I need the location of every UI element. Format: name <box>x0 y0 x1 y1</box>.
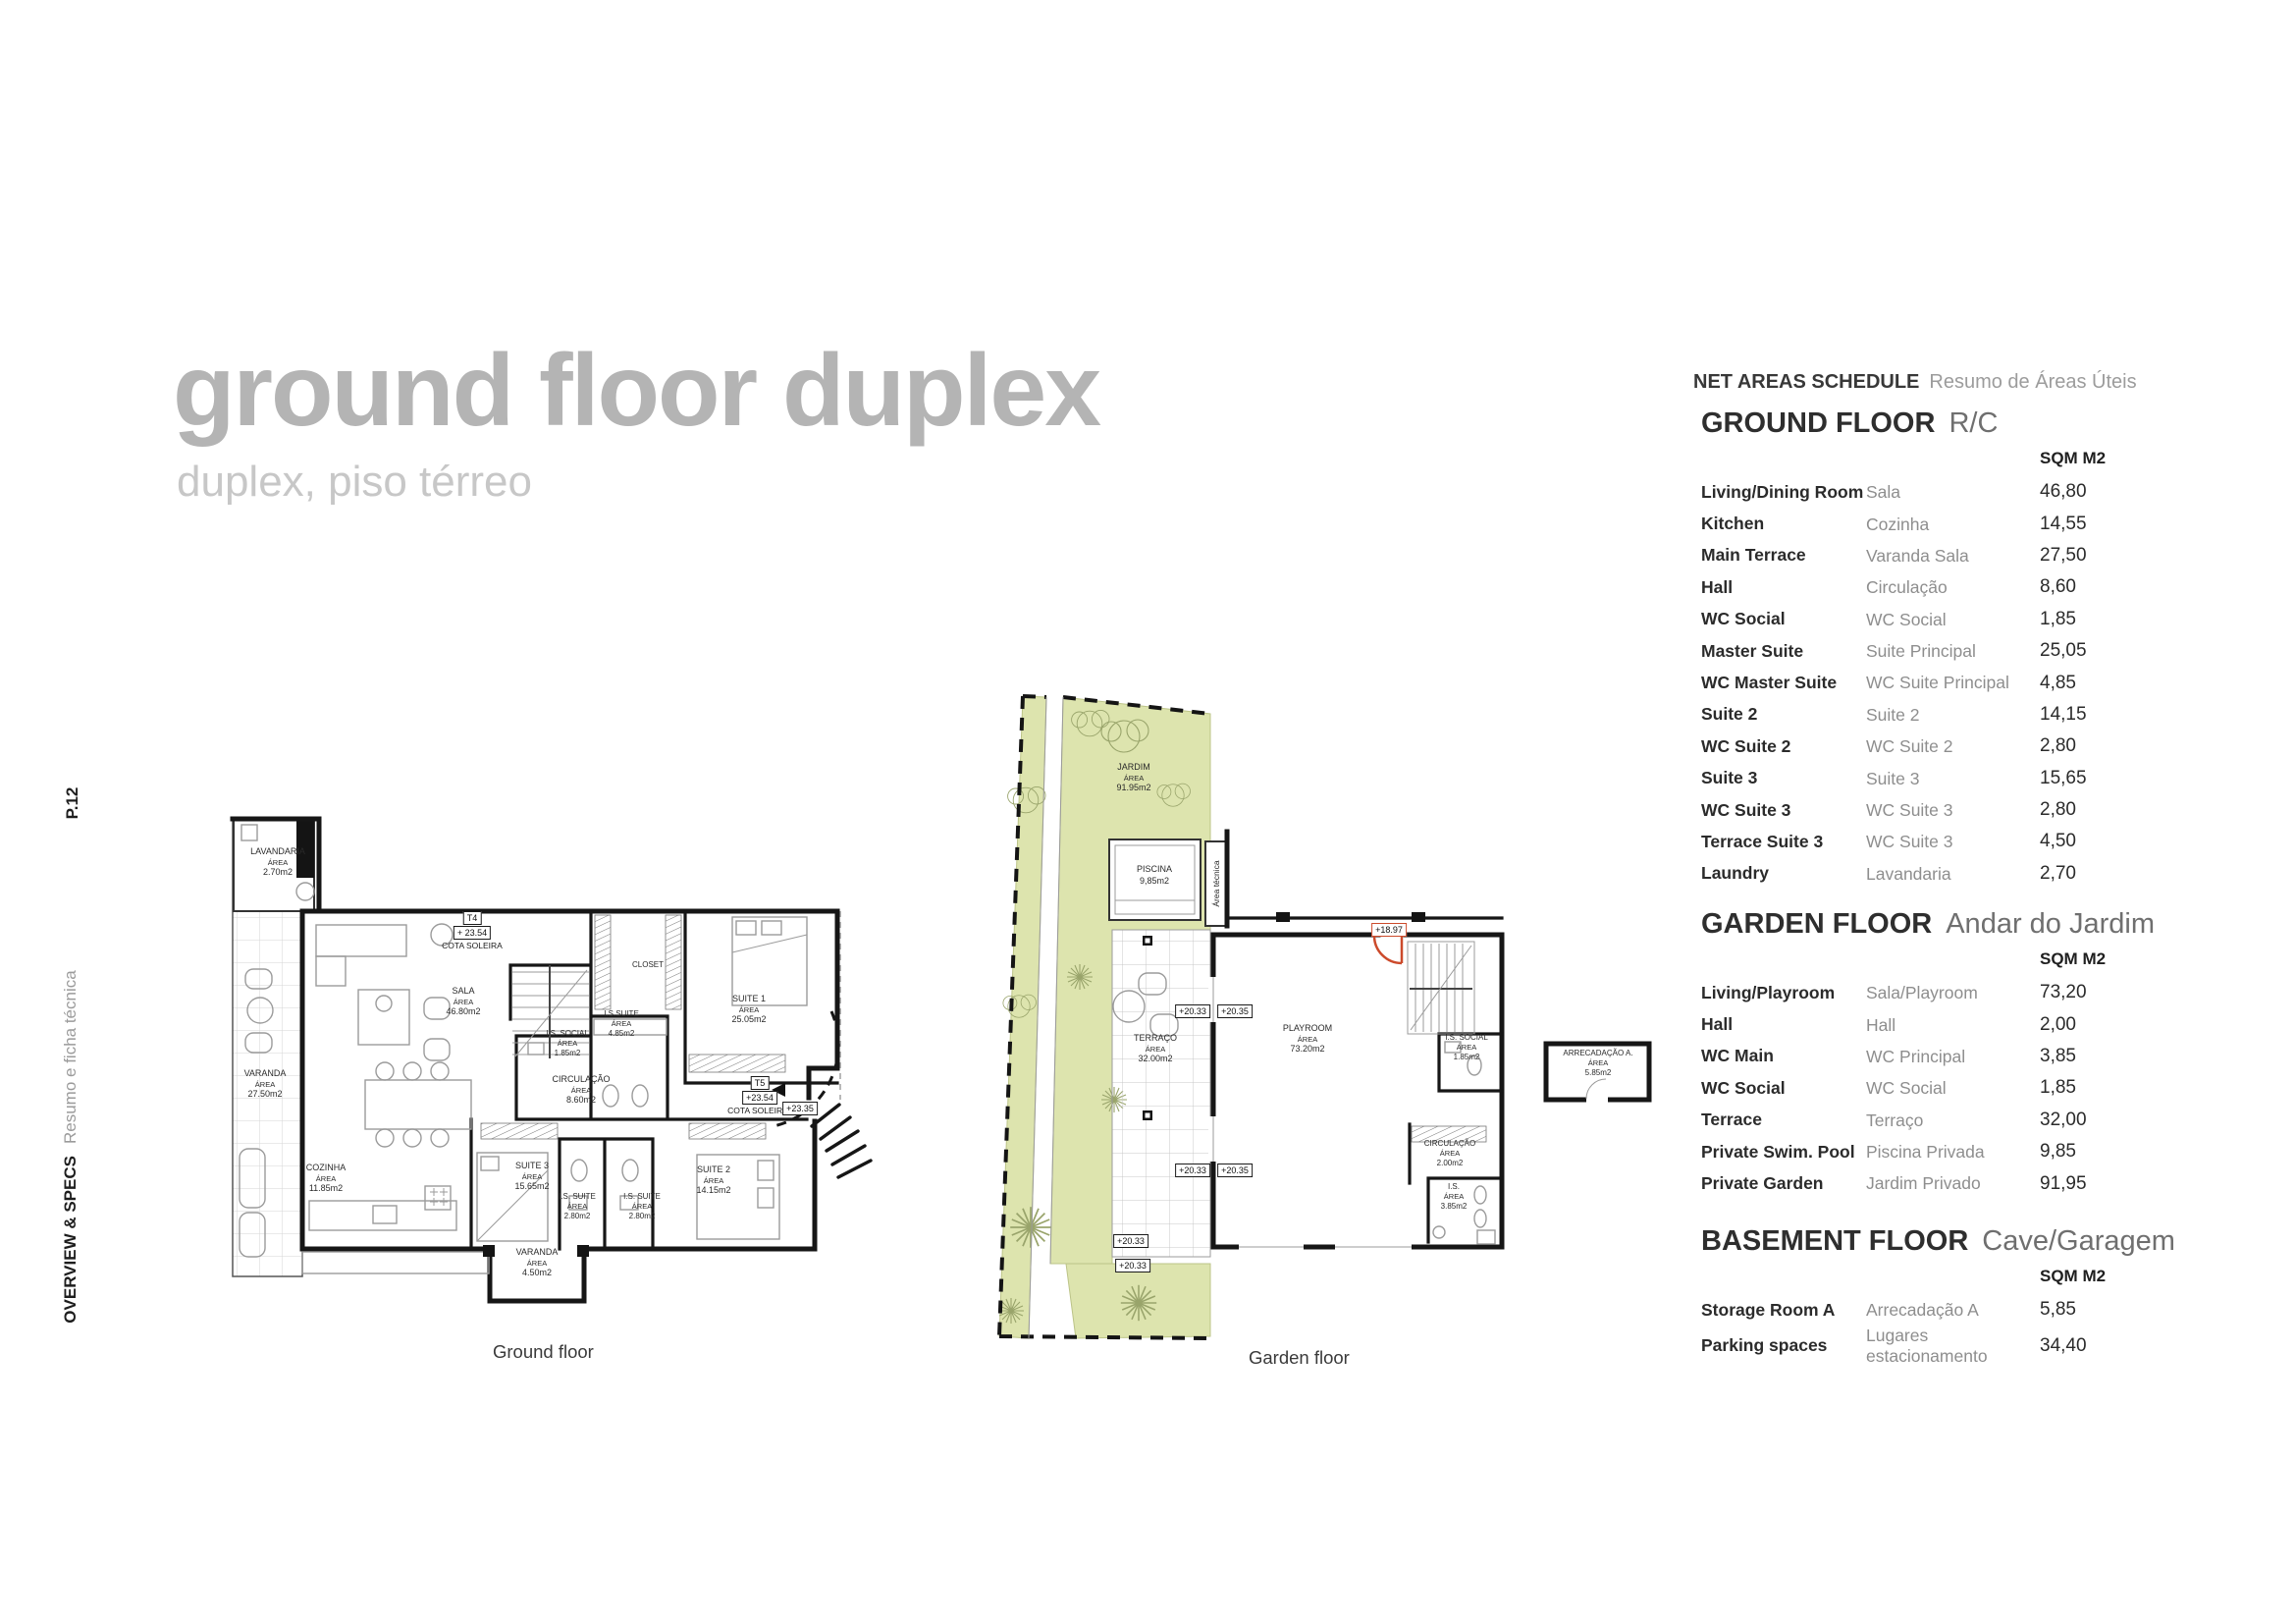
room-name-en: Laundry <box>1701 863 1866 884</box>
section-rows: Living/Playroom Sala/Playroom 73,20 Hall… <box>1693 977 2155 1200</box>
t5-badge: T5 <box>751 1076 770 1090</box>
room-area-sqm: 2,00 <box>2040 1014 2076 1036</box>
room-name-pt: Sala/Playroom <box>1866 983 2040 1002</box>
room-area-sqm: 1,85 <box>2040 1077 2076 1099</box>
room-label-is-suite-left: I.S. SUITEÁREA2.80m2 <box>559 1192 596 1222</box>
garden-stairs <box>1408 942 1474 1034</box>
room-label-closet: CLOSET <box>632 960 664 970</box>
room-name-en: Storage Room A <box>1701 1300 1866 1321</box>
room-name-pt: WC Suite Principal <box>1866 673 2040 692</box>
room-area-sqm: 4,50 <box>2040 831 2076 852</box>
room-label-garden-is: I.S.ÁREA3.85m2 <box>1441 1182 1468 1213</box>
room-name-en: Hall <box>1701 1014 1866 1035</box>
entry-annotation <box>772 911 871 1177</box>
window-openings <box>1208 977 1412 1252</box>
room-name-en: Suite 2 <box>1701 704 1866 725</box>
room-name-en: Master Suite <box>1701 641 1866 662</box>
level-badge-2033-c: +20.33 <box>1113 1234 1148 1248</box>
ground-floor-plan-drawing <box>147 805 879 1326</box>
t5-level-badge: +23.54 <box>742 1091 777 1105</box>
room-name-pt: Lavandaria <box>1866 864 2040 884</box>
room-name-pt: Varanda Sala <box>1866 546 2040 566</box>
table-row: Main Terrace Varanda Sala 27,50 <box>1693 540 2155 571</box>
room-name-pt: Piscina Privada <box>1866 1142 2040 1162</box>
unit-header: SQM M2 <box>1693 449 2155 470</box>
schedule-header: NET AREAS SCHEDULEResumo de Áreas Úteis <box>1693 371 2155 394</box>
table-row: Parking spaces Lugares estacionamento 34… <box>1693 1326 2155 1365</box>
table-row: Master Suite Suite Principal 25,05 <box>1693 635 2155 667</box>
room-label-suite-1: SUITE 1ÁREA25.05m2 <box>731 994 766 1026</box>
table-row: Living/Playroom Sala/Playroom 73,20 <box>1693 977 2155 1008</box>
room-name-pt: WC Suite 3 <box>1866 832 2040 851</box>
t5-cota-label: COTA SOLEIRA <box>727 1106 788 1115</box>
section-header: GROUND FLOORR/C <box>1693 407 2155 439</box>
room-area-sqm: 15,65 <box>2040 768 2087 789</box>
room-area-sqm: 32,00 <box>2040 1110 2087 1131</box>
room-name-en: Terrace Suite 3 <box>1701 832 1866 852</box>
table-row: Hall Hall 2,00 <box>1693 1008 2155 1040</box>
entry-level-badge: +23.35 <box>782 1102 818 1115</box>
kitchen-furniture <box>302 1186 489 1273</box>
room-area-sqm: 8,60 <box>2040 576 2076 598</box>
room-name-pt: Suite 2 <box>1866 705 2040 725</box>
room-name-en: WC Social <box>1701 609 1866 629</box>
room-name-en: WC Suite 2 <box>1701 736 1866 757</box>
room-name-pt: Cozinha <box>1866 514 2040 534</box>
ground-floor-caption: Ground floor <box>493 1341 594 1363</box>
table-row: Terrace Suite 3 WC Suite 3 4,50 <box>1693 826 2155 857</box>
room-area-sqm: 5,85 <box>2040 1299 2076 1321</box>
room-name-en: WC Main <box>1701 1046 1866 1066</box>
sidebar-section-label: OVERVIEW & SPECSResumo e ficha técnica <box>61 970 80 1323</box>
t4-level-badge: + 23.54 <box>454 926 491 940</box>
table-row: WC Suite 2 WC Suite 2 2,80 <box>1693 731 2155 762</box>
room-area-sqm: 14,15 <box>2040 704 2087 726</box>
table-row: Living/Dining Room Sala 46,80 <box>1693 476 2155 508</box>
sidebar-subtitle: Resumo e ficha técnica <box>61 970 80 1144</box>
room-area-sqm: 14,55 <box>2040 514 2087 535</box>
room-label-varanda: VARANDAÁREA27.50m2 <box>244 1068 287 1101</box>
room-label-is-social: I.S. SOCIALÁREA1.85m2 <box>546 1029 589 1059</box>
room-name-pt: Arrecadação A <box>1866 1300 2040 1320</box>
room-name-en: Main Terrace <box>1701 545 1866 566</box>
room-label-is-suite-right: I.S. SUITEÁREA2.80m2 <box>623 1192 661 1222</box>
room-label-terraco: TERRAÇOÁREA32.00m2 <box>1134 1033 1177 1065</box>
room-area-sqm: 2,80 <box>2040 799 2076 821</box>
room-label-playroom: PLAYROOMÁREA73.20m2 <box>1283 1023 1332 1056</box>
table-row: Kitchen Cozinha 14,55 <box>1693 508 2155 539</box>
room-name-pt: Jardim Privado <box>1866 1173 2040 1193</box>
room-name-en: Kitchen <box>1701 514 1866 534</box>
table-row: WC Suite 3 WC Suite 3 2,80 <box>1693 794 2155 826</box>
room-name-en: Private Garden <box>1701 1173 1866 1194</box>
level-badge-2035-a: +20.35 <box>1217 1004 1253 1018</box>
room-label-garden-is-social: I.S. SOCIALÁREA1.85m2 <box>1445 1033 1488 1063</box>
sidebar-title: OVERVIEW & SPECS <box>61 1156 80 1324</box>
t4-badge: T4 <box>463 911 482 925</box>
page-title: ground floor duplex <box>173 340 1099 442</box>
level-badge-2033-a: +20.33 <box>1175 1004 1210 1018</box>
room-label-is-suite-master: I.S.SUITEÁREA4.85m2 <box>604 1009 639 1040</box>
section-rows: Living/Dining Room Sala 46,80 Kitchen Co… <box>1693 476 2155 890</box>
page-subtitle: duplex, piso térreo <box>177 458 532 507</box>
room-area-sqm: 91,95 <box>2040 1173 2087 1195</box>
technical-area-label: Área técnica <box>1211 860 1221 906</box>
t4-cota-label: COTA SOLEIRA <box>442 941 503 950</box>
schedule-section-basement-floor: BASEMENT FLOORCave/Garagem SQM M2 Storag… <box>1693 1225 2155 1366</box>
schedule-section-garden-floor: GARDEN FLOORAndar do Jardim SQM M2 Livin… <box>1693 908 2155 1200</box>
table-row: WC Social WC Social 1,85 <box>1693 604 2155 635</box>
level-badge-2033-b: +20.33 <box>1175 1164 1210 1177</box>
room-label-sala: SALAÁREA46.80m2 <box>446 986 480 1018</box>
table-row: Terrace Terraço 32,00 <box>1693 1105 2155 1136</box>
room-label-jardim: JARDIMÁREA91.95m2 <box>1116 762 1150 794</box>
room-area-sqm: 9,85 <box>2040 1141 2076 1163</box>
room-label-piscina: PISCINA9,85m2 <box>1137 864 1172 887</box>
room-area-sqm: 46,80 <box>2040 481 2087 503</box>
room-name-en: Terrace <box>1701 1110 1866 1130</box>
room-name-pt: Circulação <box>1866 577 2040 597</box>
room-name-pt: Lugares estacionamento <box>1866 1326 2040 1365</box>
room-area-sqm: 27,50 <box>2040 545 2087 567</box>
room-area-sqm: 2,80 <box>2040 735 2076 757</box>
table-row: Suite 2 Suite 2 14,15 <box>1693 699 2155 731</box>
schedule-section-ground-floor: GROUND FLOORR/C SQM M2 Living/Dining Roo… <box>1693 407 2155 890</box>
room-label-circulacao: CIRCULAÇÃOÁREA8.60m2 <box>552 1074 610 1107</box>
room-name-en: Private Swim. Pool <box>1701 1142 1866 1163</box>
room-name-pt: WC Suite 3 <box>1866 800 2040 820</box>
section-header: GARDEN FLOORAndar do Jardim <box>1693 908 2155 940</box>
page: ground floor duplex duplex, piso térreo … <box>0 0 2296 1624</box>
room-name-pt: WC Suite 2 <box>1866 736 2040 756</box>
terrace-area <box>1112 930 1210 1257</box>
room-name-pt: Suite Principal <box>1866 641 2040 661</box>
table-row: WC Master Suite WC Suite Principal 4,85 <box>1693 667 2155 698</box>
level-badge-2033-d: +20.33 <box>1115 1259 1150 1272</box>
room-name-en: Parking spaces <box>1701 1335 1866 1356</box>
level-badge-1897: +18.97 <box>1371 923 1407 937</box>
room-area-sqm: 2,70 <box>2040 863 2076 885</box>
room-label-garden-circulacao: CIRCULAÇÃOÁREA2.00m2 <box>1424 1139 1475 1169</box>
room-area-sqm: 25,05 <box>2040 640 2087 662</box>
table-row: Private Garden Jardim Privado 91,95 <box>1693 1167 2155 1199</box>
room-label-suite-3: SUITE 3ÁREA15.65m2 <box>514 1161 549 1193</box>
room-label-arrecadacao: ARRECADAÇÃO A.ÁREA5.85m2 <box>1563 1049 1632 1079</box>
table-row: Hall Circulação 8,60 <box>1693 571 2155 603</box>
room-name-en: WC Suite 3 <box>1701 800 1866 821</box>
room-label-varanda-suite: VARANDAÁREA4.50m2 <box>516 1247 559 1279</box>
room-name-en: Suite 3 <box>1701 768 1866 788</box>
living-room-furniture <box>316 924 471 1147</box>
schedule-title: NET AREAS SCHEDULE <box>1693 371 1919 393</box>
section-header: BASEMENT FLOORCave/Garagem <box>1693 1225 2155 1257</box>
room-name-pt: WC Social <box>1866 1078 2040 1098</box>
room-name-pt: Hall <box>1866 1015 2040 1035</box>
room-name-pt: WC Principal <box>1866 1047 2040 1066</box>
room-name-en: WC Social <box>1701 1078 1866 1099</box>
room-name-pt: Suite 3 <box>1866 769 2040 788</box>
room-label-cozinha: COZINHAÁREA11.85m2 <box>306 1163 347 1195</box>
table-row: Private Swim. Pool Piscina Privada 9,85 <box>1693 1136 2155 1167</box>
room-name-en: Living/Dining Room <box>1701 482 1866 503</box>
room-area-sqm: 4,85 <box>2040 673 2076 694</box>
page-number: P.12 <box>63 787 82 820</box>
garden-floor-caption: Garden floor <box>1249 1347 1350 1369</box>
table-row: Laundry Lavandaria 2,70 <box>1693 858 2155 890</box>
schedule-title-pt: Resumo de Áreas Úteis <box>1929 371 2136 393</box>
room-name-en: Living/Playroom <box>1701 983 1866 1003</box>
unit-header: SQM M2 <box>1693 1267 2155 1288</box>
table-row: Storage Room A Arrecadação A 5,85 <box>1693 1294 2155 1326</box>
room-area-sqm: 73,20 <box>2040 982 2087 1003</box>
entry-door <box>1374 936 1402 963</box>
room-area-sqm: 3,85 <box>2040 1046 2076 1067</box>
unit-header: SQM M2 <box>1693 949 2155 971</box>
room-name-pt: Sala <box>1866 482 2040 502</box>
room-area-sqm: 1,85 <box>2040 609 2076 630</box>
level-badge-2035-b: +20.35 <box>1217 1164 1253 1177</box>
room-label-lavandaria: LAVANDARIAÁREA2.70m2 <box>250 846 305 879</box>
room-area-sqm: 34,40 <box>2040 1335 2087 1357</box>
table-row: WC Social WC Social 1,85 <box>1693 1072 2155 1104</box>
section-rows: Storage Room A Arrecadação A 5,85 Parkin… <box>1693 1294 2155 1366</box>
room-name-pt: Terraço <box>1866 1110 2040 1130</box>
table-row: WC Main WC Principal 3,85 <box>1693 1041 2155 1072</box>
room-name-en: WC Master Suite <box>1701 673 1866 693</box>
net-areas-schedule: NET AREAS SCHEDULEResumo de Áreas Úteis … <box>1693 371 2155 394</box>
room-name-en: Hall <box>1701 577 1866 598</box>
table-row: Suite 3 Suite 3 15,65 <box>1693 763 2155 794</box>
room-name-pt: WC Social <box>1866 610 2040 629</box>
room-label-suite-2: SUITE 2ÁREA14.15m2 <box>696 1164 730 1197</box>
